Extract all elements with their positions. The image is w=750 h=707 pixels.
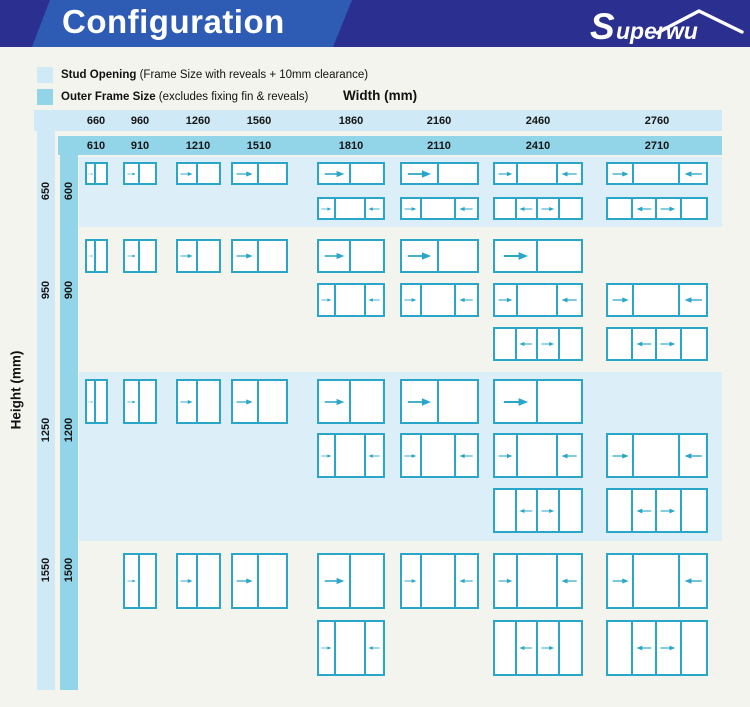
sliding-panel [319,241,351,271]
arrow-right-icon [88,169,93,179]
arrow-right-icon [612,576,629,586]
arrow-right-icon [498,576,513,586]
window-diagram-2panel [493,239,583,273]
fixed-panel [351,164,383,183]
legend: Stud Opening (Frame Size with reveals + … [37,64,368,108]
fixed-panel [682,622,707,674]
fixed-panel [495,329,517,359]
page-title: Configuration [62,3,285,41]
sliding-panel [319,199,336,218]
arrow-left-icon [636,204,652,214]
sliding-panel [319,555,351,607]
fixed-panel [634,285,679,315]
fixed-panel [96,241,106,271]
sliding-panel [495,435,518,476]
sliding-panel [495,241,538,271]
sliding-panel [608,555,634,607]
arrow-right-icon [407,251,432,261]
window-diagram-4panel [606,197,708,220]
arrow-right-icon [660,339,676,349]
sliding-panel [633,329,658,359]
fixed-panel [608,490,633,531]
sliding-panel [402,164,440,183]
sliding-panel [680,555,706,607]
window-diagram-2panel [176,239,221,273]
arrow-left-icon [684,295,703,305]
arrow-right-icon [180,576,193,586]
arrow-right-icon [321,643,332,653]
frame-width-value: 1210 [186,140,210,152]
arrow-left-icon [519,643,533,653]
arrow-left-icon [519,339,533,349]
window-diagram-2panel [400,379,479,424]
window-diagram-3panel [317,283,385,317]
stud-width-value: 660 [87,115,105,127]
arrow-right-icon [503,251,529,261]
fixed-panel [198,381,219,422]
arrow-right-icon [404,576,417,586]
fixed-panel [422,555,457,607]
fixed-panel [538,381,581,422]
svg-text:S: S [590,6,615,46]
arrow-right-icon [324,169,345,179]
arrow-right-icon [321,295,332,305]
frame-height-header-strip: 60090012001500 [60,136,78,690]
fixed-panel [518,285,558,315]
arrow-right-icon [236,397,253,407]
frame-height-value: 900 [63,281,75,299]
fixed-panel [560,622,582,674]
window-diagram-4panel [493,327,583,361]
stud-height-value: 650 [40,182,52,200]
window-diagram-2panel [176,553,221,609]
window-diagram-2panel [176,379,221,424]
sliding-panel [402,435,422,476]
window-diagram-2panel [317,239,385,273]
fixed-panel [336,622,365,674]
window-diagram-2panel [231,553,288,609]
sliding-panel [538,329,560,359]
arrow-right-icon [498,451,513,461]
sliding-panel [456,199,476,218]
arrow-left-icon [684,451,703,461]
sliding-panel [538,199,560,218]
sliding-panel [125,241,140,271]
fixed-panel [634,164,679,183]
legend-item-outer-frame: Outer Frame Size (excludes fixing fin & … [37,86,368,108]
legend-swatch-stud [37,67,53,83]
arrow-right-icon [612,451,629,461]
window-diagram-4panel [493,620,583,676]
arrow-right-icon [236,576,253,586]
stud-height-value: 950 [40,281,52,299]
window-diagram-2panel [85,379,108,424]
sliding-panel [233,241,260,271]
arrow-left-icon [368,204,380,214]
window-diagram-2panel [317,162,385,185]
arrow-right-icon [404,295,417,305]
fixed-panel [96,381,106,422]
frame-height-value: 600 [63,182,75,200]
fixed-panel [560,199,582,218]
frame-width-value: 910 [131,140,149,152]
arrow-left-icon [459,295,473,305]
frame-width-value: 1810 [339,140,363,152]
stud-height-value: 1250 [40,418,52,442]
window-diagram-3panel [317,620,385,676]
fixed-panel [96,164,106,183]
window-diagram-2panel [123,379,157,424]
sliding-panel [538,490,560,531]
fixed-panel [336,285,365,315]
sliding-panel [517,199,539,218]
fixed-panel [259,555,286,607]
window-diagram-4panel [493,488,583,533]
fixed-panel [140,241,155,271]
arrow-right-icon [236,251,253,261]
fixed-panel [422,285,457,315]
fixed-panel [336,199,365,218]
fixed-panel [608,199,633,218]
sliding-panel [178,164,199,183]
sliding-panel [402,199,422,218]
legend-swatch-frame [37,89,53,105]
fixed-panel [351,555,383,607]
arrow-right-icon [88,251,93,261]
sliding-panel [366,622,383,674]
stud-width-value: 2760 [645,115,669,127]
sliding-panel [558,164,581,183]
arrow-right-icon [127,169,136,179]
sliding-panel [558,435,581,476]
sliding-panel [319,285,336,315]
stud-height-header-strip: 65095012501550 [37,110,55,690]
sliding-panel [456,285,476,315]
window-diagram-2panel [317,553,385,609]
fixed-panel [422,435,457,476]
arrow-right-icon [498,169,513,179]
arrow-right-icon [127,251,136,261]
arrow-right-icon [541,339,555,349]
arrow-left-icon [561,169,577,179]
window-diagram-3panel [493,162,583,185]
sliding-panel [402,555,422,607]
sliding-panel [657,490,682,531]
sliding-panel [319,164,351,183]
window-diagram-3panel [606,283,708,317]
arrow-right-icon [407,397,432,407]
arrow-right-icon [88,397,93,407]
sliding-panel [402,285,422,315]
window-diagram-2panel [493,379,583,424]
sliding-panel [402,381,440,422]
window-diagram-2panel [400,239,479,273]
sliding-panel [495,381,538,422]
sliding-panel [633,622,658,674]
sliding-panel [633,490,658,531]
sliding-panel [319,435,336,476]
window-diagram-3panel [400,433,479,478]
arrow-left-icon [368,295,380,305]
window-diagram-3panel [606,553,708,609]
fixed-panel [518,555,558,607]
sliding-panel [558,285,581,315]
window-diagram-3panel [493,283,583,317]
window-diagram-2panel [231,239,288,273]
arrow-left-icon [561,295,577,305]
arrow-right-icon [321,204,332,214]
window-diagram-2panel [123,553,157,609]
window-diagram-3panel [400,283,479,317]
arrow-right-icon [503,397,529,407]
arrow-left-icon [519,506,533,516]
fixed-panel [259,241,286,271]
fixed-panel [518,435,558,476]
arrow-left-icon [561,451,577,461]
stud-width-value: 1860 [339,115,363,127]
sliding-panel [178,241,199,271]
arrow-left-icon [519,204,533,214]
frame-width-value: 1510 [247,140,271,152]
sliding-panel [402,241,440,271]
window-diagram-3panel [317,197,385,220]
window-diagram-2panel [85,239,108,273]
sliding-panel [608,285,634,315]
fixed-panel [259,381,286,422]
sliding-panel [233,555,260,607]
sliding-panel [495,285,518,315]
sliding-panel [233,164,260,183]
frame-width-value: 610 [87,140,105,152]
sliding-panel [366,285,383,315]
fixed-panel [495,490,517,531]
arrow-right-icon [180,169,193,179]
window-diagram-2panel [123,239,157,273]
fixed-panel [682,329,707,359]
fixed-panel [351,381,383,422]
arrow-left-icon [636,506,652,516]
sliding-panel [456,435,476,476]
arrow-right-icon [324,251,345,261]
sliding-panel [657,622,682,674]
frame-height-value: 1200 [63,418,75,442]
arrow-left-icon [636,643,652,653]
width-axis-label: Width (mm) [343,88,417,103]
window-diagram-2panel [317,379,385,424]
sliding-panel [608,164,634,183]
fixed-panel [439,241,477,271]
arrow-right-icon [324,397,345,407]
window-diagram-2panel [400,162,479,185]
legend-item-stud-opening: Stud Opening (Frame Size with reveals + … [37,64,368,86]
fixed-panel [422,199,457,218]
arrow-right-icon [612,295,629,305]
arrow-right-icon [660,204,676,214]
window-diagram-2panel [231,162,288,185]
arrow-left-icon [684,169,703,179]
sliding-panel [680,285,706,315]
fixed-panel [634,435,679,476]
window-diagram-3panel [493,553,583,609]
frame-width-value: 2110 [427,140,451,152]
sliding-panel [366,199,383,218]
sliding-panel [456,555,476,607]
sliding-panel [319,381,351,422]
arrow-right-icon [127,576,136,586]
arrow-right-icon [127,397,136,407]
window-diagram-3panel [400,553,479,609]
sliding-panel [319,622,336,674]
fixed-panel [608,622,633,674]
header-bar: Configuration S uperwu [0,0,750,47]
fixed-panel [518,164,558,183]
window-diagram-4panel [493,197,583,220]
sliding-panel [517,622,539,674]
fixed-panel [495,622,517,674]
sliding-panel [538,622,560,674]
fixed-panel [140,381,155,422]
arrow-right-icon [404,451,417,461]
fixed-panel [682,490,707,531]
sliding-panel [608,435,634,476]
fixed-panel [198,241,219,271]
stud-width-value: 960 [131,115,149,127]
arrow-left-icon [684,576,703,586]
stud-height-value: 1550 [40,558,52,582]
fixed-panel [259,164,286,183]
sliding-panel [517,329,539,359]
legend-desc-stud: (Frame Size with reveals + 10mm clearanc… [140,69,368,81]
sliding-panel [125,381,140,422]
arrow-right-icon [660,643,676,653]
sliding-panel [87,241,97,271]
sliding-panel [633,199,658,218]
window-diagram-4panel [606,620,708,676]
sliding-panel [233,381,260,422]
arrow-left-icon [459,204,473,214]
stud-width-value: 1560 [247,115,271,127]
sliding-panel [558,555,581,607]
sliding-panel [680,435,706,476]
fixed-panel [634,555,679,607]
stud-width-value: 2460 [526,115,550,127]
arrow-left-icon [636,339,652,349]
fixed-panel [140,555,155,607]
height-axis-label: Height (mm) [9,351,24,430]
fixed-panel [140,164,155,183]
window-diagram-3panel [400,197,479,220]
arrow-right-icon [404,204,417,214]
arrow-right-icon [407,169,432,179]
stud-width-value: 2160 [427,115,451,127]
sliding-panel [657,199,682,218]
arrow-right-icon [236,169,253,179]
arrow-right-icon [541,204,555,214]
window-diagram-2panel [123,162,157,185]
sliding-panel [495,164,518,183]
fixed-panel [351,241,383,271]
sliding-panel [680,164,706,183]
arrow-right-icon [321,451,332,461]
sliding-panel [657,329,682,359]
sliding-panel [125,164,140,183]
window-diagram-2panel [176,162,221,185]
frame-width-value: 2410 [526,140,550,152]
arrow-right-icon [660,506,676,516]
window-diagram-3panel [606,433,708,478]
fixed-panel [560,329,582,359]
window-diagram-3panel [493,433,583,478]
arrow-right-icon [541,643,555,653]
window-diagram-2panel [231,379,288,424]
sliding-panel [178,381,199,422]
legend-label-stud: Stud Opening [61,69,136,81]
brand-logo: S uperwu [585,1,745,46]
fixed-panel [560,490,582,531]
stud-width-value: 1260 [186,115,210,127]
fixed-panel [439,164,477,183]
fixed-panel [608,329,633,359]
fixed-panel [439,381,477,422]
arrow-right-icon [180,251,193,261]
arrow-right-icon [498,295,513,305]
arrow-left-icon [459,576,473,586]
fixed-panel [198,164,219,183]
page: Configuration S uperwu Stud Opening (Fra… [0,0,750,707]
arrow-left-icon [368,643,380,653]
sliding-panel [366,435,383,476]
fixed-panel [495,199,517,218]
sliding-panel [87,381,97,422]
frame-width-header-strip: 610910121015101810211024102710 [58,136,722,155]
window-diagram-4panel [606,488,708,533]
sliding-panel [178,555,199,607]
fixed-panel [336,435,365,476]
window-diagram-3panel [606,162,708,185]
frame-width-value: 2710 [645,140,669,152]
sliding-panel [87,164,97,183]
arrow-right-icon [324,576,345,586]
legend-label-frame: Outer Frame Size [61,91,156,103]
frame-height-value: 1500 [63,558,75,582]
arrow-left-icon [368,451,380,461]
arrow-right-icon [612,169,629,179]
fixed-panel [538,241,581,271]
arrow-right-icon [180,397,193,407]
sliding-panel [125,555,140,607]
stud-width-header-strip: 660960126015601860216024602760 [34,110,722,131]
fixed-panel [198,555,219,607]
window-diagram-3panel [317,433,385,478]
arrow-left-icon [459,451,473,461]
arrow-right-icon [541,506,555,516]
sliding-panel [495,555,518,607]
brand-logo-text: uperwu [616,18,698,44]
arrow-left-icon [561,576,577,586]
window-diagram-2panel [85,162,108,185]
sliding-panel [517,490,539,531]
legend-desc-frame: (excludes fixing fin & reveals) [159,91,309,103]
window-diagram-4panel [606,327,708,361]
fixed-panel [682,199,707,218]
